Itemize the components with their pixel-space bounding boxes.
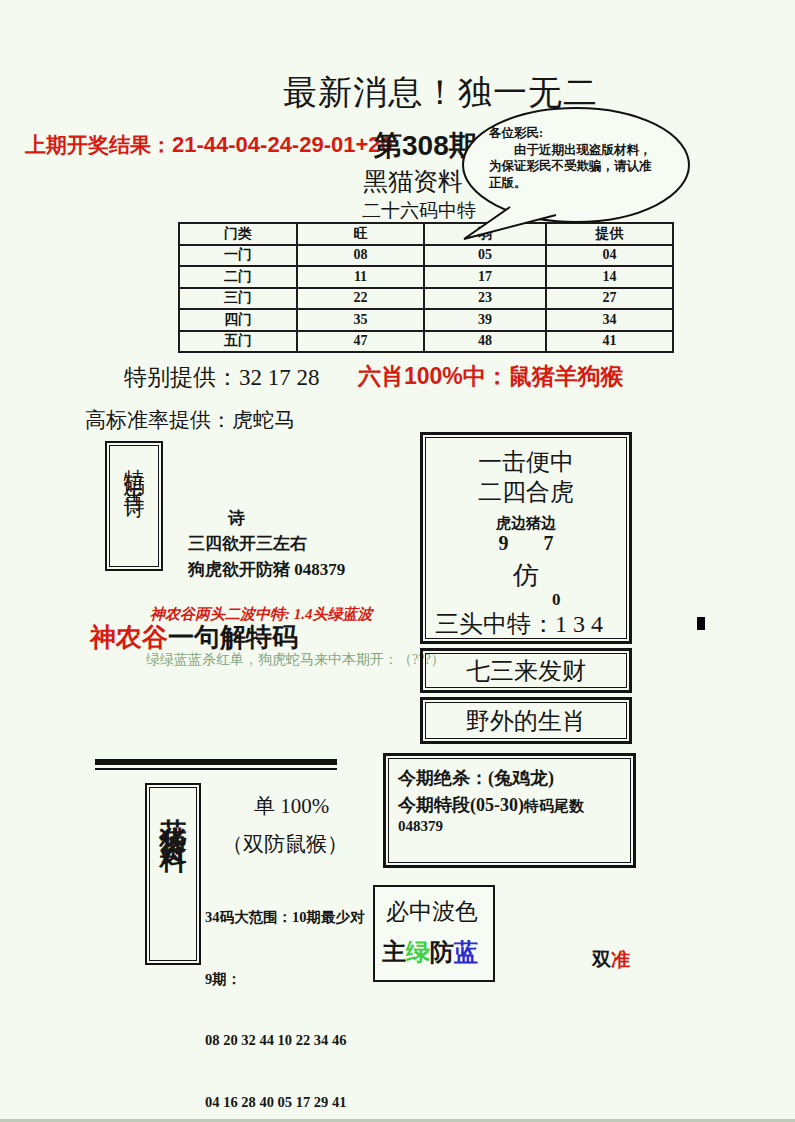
range-line-2: 9期：: [205, 969, 365, 990]
special-provide-label: 特别提供：: [124, 365, 239, 390]
notice-salutation: 各位彩民:: [489, 125, 659, 142]
poem-line-1: 三四欲开三左右: [188, 532, 307, 555]
brand-name: 黑猫资料: [363, 165, 463, 198]
previous-result-label: 上期开奖结果：: [25, 133, 172, 156]
cell-wang: 08: [297, 245, 424, 267]
current-issue-kill-line: 今期绝杀：(兔鸡龙): [398, 766, 621, 790]
wave-color-picks: 主绿防蓝: [375, 927, 493, 968]
wave-main-label: 主: [382, 939, 406, 965]
range-line-4: 04 16 28 40 05 17 29 41: [205, 1092, 365, 1113]
double-guard-line: （双防鼠猴）: [222, 830, 348, 858]
wave-color-title: 必中波色: [375, 887, 493, 927]
cell-tigong: 34: [546, 309, 673, 331]
special-provide-line: 特别提供：32 17 28: [124, 362, 320, 393]
fortune-box: 七三来发财: [420, 648, 632, 693]
page: 最新消息！独一无二 上期开奖结果：21-44-04-24-29-01+20 第3…: [0, 0, 795, 1122]
col-header-category: 门类: [179, 223, 297, 245]
current-issue-segment-line: 今期特段(05-30)特码尾数 048379: [398, 793, 621, 835]
cell-category: 一门: [179, 245, 297, 267]
notice-body: 由于近期出现盗版材料，为保证彩民不受欺骗，请认准正版。: [489, 142, 659, 192]
huamao-box: 花猫资料: [145, 783, 201, 965]
cell-ruo: 17: [424, 266, 546, 288]
cell-category: 三门: [179, 288, 297, 310]
previous-result-line: 上期开奖结果：21-44-04-24-29-01+20: [25, 131, 393, 159]
high-rate-line: 高标准率提供：虎蛇马: [85, 406, 295, 434]
shennonggu-title: 一句解特码: [168, 622, 298, 652]
range-line-1: 34码大范围：10期最少对: [205, 907, 365, 928]
seal-char-2: 准: [611, 949, 630, 970]
strike-line-3: 虎边猪边: [426, 514, 626, 533]
cell-wang: 22: [297, 288, 424, 310]
shennonggu-title-line: 神农谷一句解特码: [90, 620, 298, 655]
cell-tigong: 41: [546, 331, 673, 353]
section-divider: [95, 759, 337, 770]
special-provide-numbers: 32 17 28: [239, 365, 320, 390]
range-number-block: 34码大范围：10期最少对 9期： 08 20 32 44 10 22 34 4…: [205, 866, 365, 1122]
scan-mark: [697, 617, 705, 630]
cell-ruo: 23: [424, 288, 546, 310]
shennonggu-green-line: 绿绿蓝蓝杀红单，狗虎蛇马来中本期开：（???）: [146, 651, 445, 669]
wave-green-char: 绿: [406, 939, 430, 965]
cell-tigong: 27: [546, 288, 673, 310]
previous-result-numbers: 21-44-04-24-29-01+20: [172, 132, 393, 157]
cell-wang: 47: [297, 331, 424, 353]
table-row: 二门 11 17 14: [179, 266, 673, 288]
cell-wang: 11: [297, 266, 424, 288]
segment-range: 今期特段(05-30): [398, 795, 524, 815]
six-zodiac-line: 六肖100%中：鼠猪羊狗猴: [358, 361, 624, 392]
strike-line-7: 三头中特：1 3 4: [435, 608, 603, 640]
wave-guard-label: 防: [430, 939, 454, 965]
strike-line-2: 二四合虎: [426, 476, 626, 508]
strike-box: 一击便中 二四合虎 虎边猪边 9 7 仿 0 三头中特：1 3 4: [420, 432, 632, 644]
table-row: 四门 35 39 34: [179, 309, 673, 331]
strike-line-1: 一击便中: [426, 446, 626, 478]
poem-line-2: 狗虎欲开防猪 048379: [188, 558, 345, 581]
seal-char-1: 双: [592, 949, 611, 970]
zodiac-poem-box-title: 特码生肖诗: [120, 446, 148, 566]
shennonggu-name: 神农谷: [90, 622, 168, 652]
cell-ruo: 48: [424, 331, 546, 353]
fortune-box-text: 七三来发财: [466, 655, 586, 687]
cell-category: 四门: [179, 309, 297, 331]
cell-category: 二门: [179, 266, 297, 288]
cell-ruo: 05: [424, 245, 546, 267]
col-header-wang: 旺: [297, 223, 424, 245]
range-line-3: 08 20 32 44 10 22 34 46: [205, 1030, 365, 1051]
cell-tigong: 04: [546, 245, 673, 267]
cell-category: 五门: [179, 331, 297, 353]
wild-zodiac-box-text: 野外的生肖: [466, 705, 586, 737]
notice-text: 各位彩民: 由于近期出现盗版材料，为保证彩民不受欺骗，请认准正版。: [489, 125, 659, 191]
wild-zodiac-box: 野外的生肖: [420, 697, 632, 744]
table-row: 三门 22 23 27: [179, 288, 673, 310]
wave-color-box: 必中波色 主绿防蓝: [373, 885, 495, 982]
table-row: 一门 08 05 04: [179, 245, 673, 267]
cell-tigong: 14: [546, 266, 673, 288]
zodiac-poem-box: 特码生肖诗: [105, 441, 163, 571]
wave-blue-char: 蓝: [454, 939, 478, 965]
double-accurate-seal: 双准: [592, 947, 630, 973]
huamao-box-title: 花猫资料: [155, 788, 191, 960]
strike-line-4: 9 7: [426, 532, 626, 555]
strike-line-5: 仿: [426, 558, 626, 593]
current-issue-box: 今期绝杀：(兔鸡龙) 今期特段(05-30)特码尾数 048379: [383, 753, 636, 868]
cell-wang: 35: [297, 309, 424, 331]
dan-100-line: 单 100%: [254, 792, 329, 820]
strike-line-6: 0: [552, 590, 561, 610]
table-row: 五门 47 48 41: [179, 331, 673, 353]
poem-heading: 诗: [228, 507, 245, 530]
cell-ruo: 39: [424, 309, 546, 331]
